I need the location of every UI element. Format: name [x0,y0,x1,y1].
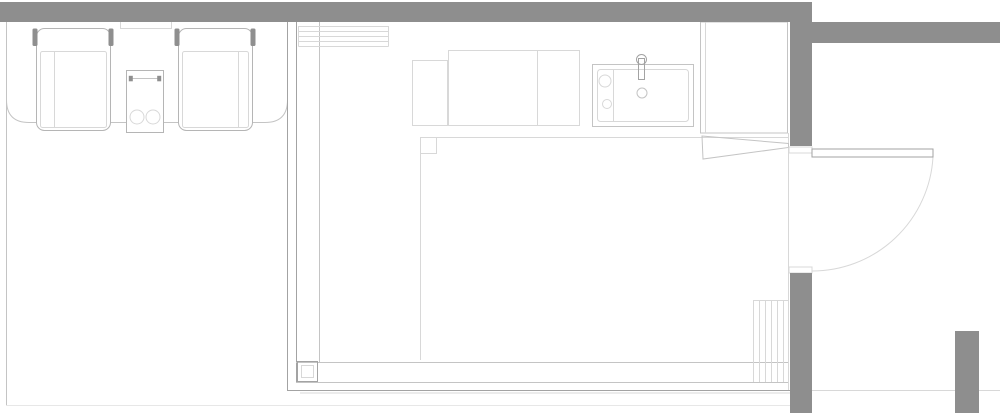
column-inner [302,366,314,378]
sink [593,55,694,127]
column-outer [298,362,318,382]
sink-basin-outline [598,70,689,122]
counter-module-end [538,51,580,126]
wardrobe [701,22,789,159]
bench-hatch [299,26,389,47]
chair-body [37,29,111,131]
terrace-boundary [6,22,790,406]
sink-drain-circle [637,88,647,98]
faucet [637,55,647,80]
right-entry-wall-lower [790,273,812,413]
rug-corner-marker [421,138,437,154]
sink-counter-outline [593,65,694,127]
chair-body [179,29,253,131]
door-jamb-bottom [789,267,812,273]
chair-armrest-right [251,29,256,47]
corner-column [298,362,318,382]
stairs-hatch [753,300,788,382]
table-bar-cap-right [157,76,161,82]
right-entry-wall-upper [790,22,812,146]
door-jamb-top [789,147,812,153]
sink-accessory-circle-small [603,100,612,109]
counter-module-large [449,51,538,126]
east-wall-segment [812,22,1000,43]
top-wall [0,2,812,22]
lounge-chair-left [33,29,114,131]
counter-module-small [413,61,448,126]
chair-armrest-left [175,29,180,47]
window-marker [121,22,172,29]
room-glass-walls [287,22,1000,393]
wardrobe-door [702,136,789,159]
sink-accessory-circle-large [599,75,611,87]
rug-outline [421,138,789,361]
floor-plan-canvas [0,0,1000,413]
floor-plan-drawing [0,0,1000,413]
rug-edge [421,138,789,361]
table-bar-cap-left [129,76,133,82]
chair-armrest-left [33,29,38,47]
south-east-pier [955,331,979,413]
chair-armrest-right [109,29,114,47]
lounge-chair-right [175,29,256,131]
side-table [127,71,164,133]
entry-door-swing [812,157,934,271]
entry-door-leaf [812,149,933,157]
kitchen-counter [413,51,580,126]
entry-door [789,147,933,273]
wardrobe-outline [701,22,788,133]
